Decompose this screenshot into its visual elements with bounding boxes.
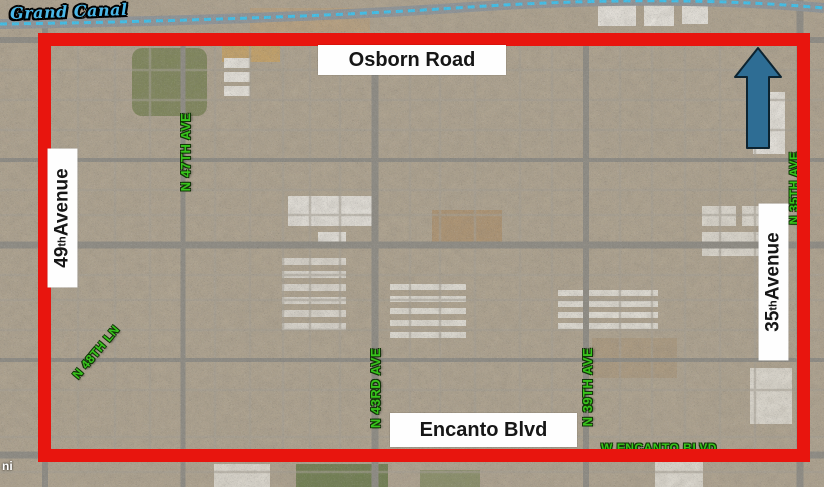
north-arrow-icon	[727, 44, 789, 154]
35th-avenue-word: Avenue	[763, 232, 785, 300]
osborn-road-text: Osborn Road	[349, 49, 476, 72]
map-figure: N 47TH AVE N 48TH LN N 43RD AVE N 39TH A…	[0, 0, 824, 487]
35th-avenue-label: 35th Avenue	[759, 204, 789, 361]
49th-avenue-label: 49th Avenue	[48, 149, 78, 288]
encanto-blvd-text: Encanto Blvd	[420, 419, 548, 442]
49th-avenue-number: 49	[52, 247, 74, 268]
watermark-fragment: ni	[2, 459, 13, 473]
osborn-road-label: Osborn Road	[318, 45, 506, 75]
49th-avenue-word: Avenue	[52, 168, 74, 236]
encanto-blvd-label: Encanto Blvd	[390, 413, 577, 447]
35th-avenue-number: 35	[763, 311, 785, 332]
study-area-boundary	[38, 33, 810, 462]
